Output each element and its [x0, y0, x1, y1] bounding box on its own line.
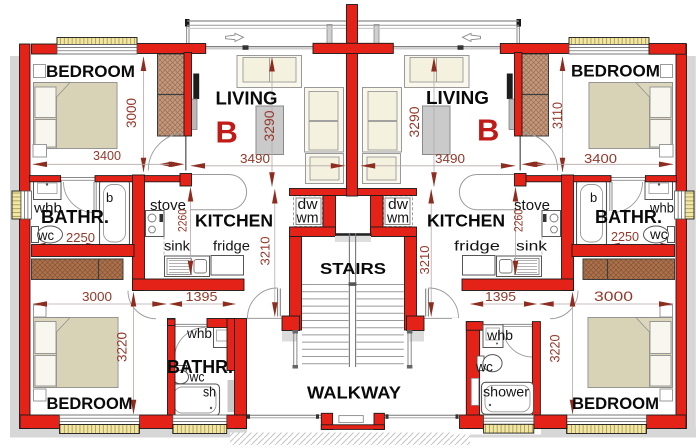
- svg-text:BEDROOM: BEDROOM: [572, 394, 659, 413]
- svg-text:fridge: fridge: [213, 238, 250, 254]
- svg-text:wc: wc: [189, 369, 205, 385]
- svg-text:wc: wc: [37, 227, 54, 243]
- svg-text:3110: 3110: [550, 102, 565, 129]
- svg-text:3490: 3490: [435, 151, 465, 166]
- svg-text:3400: 3400: [93, 149, 121, 163]
- svg-text:1395: 1395: [485, 289, 516, 304]
- svg-text:2260: 2260: [178, 209, 190, 232]
- svg-text:whb: whb: [486, 327, 513, 343]
- svg-text:sink: sink: [164, 238, 191, 254]
- svg-text:sink: sink: [516, 238, 548, 254]
- svg-text:1395: 1395: [186, 289, 218, 304]
- svg-text:3000: 3000: [82, 289, 112, 304]
- svg-text:wm: wm: [296, 211, 319, 227]
- svg-text:b: b: [106, 190, 113, 205]
- svg-text:whb: whb: [33, 200, 62, 216]
- svg-text:2250: 2250: [611, 229, 639, 244]
- svg-text:3210: 3210: [417, 246, 432, 275]
- svg-text:B: B: [477, 113, 499, 148]
- svg-text:3220: 3220: [548, 335, 563, 363]
- svg-text:KITCHEN: KITCHEN: [195, 211, 273, 231]
- svg-text:fridge: fridge: [454, 238, 500, 254]
- svg-text:KITCHEN: KITCHEN: [427, 211, 505, 231]
- svg-text:3000: 3000: [124, 98, 139, 128]
- svg-text:LIVING: LIVING: [426, 88, 489, 108]
- svg-text:sh: sh: [203, 384, 216, 400]
- svg-text:WALKWAY: WALKWAY: [307, 383, 401, 403]
- svg-text:wm: wm: [386, 211, 409, 227]
- svg-text:B: B: [216, 115, 238, 150]
- svg-text:b: b: [590, 190, 597, 205]
- svg-text:BEDROOM: BEDROOM: [571, 62, 660, 81]
- svg-text:2260: 2260: [514, 209, 526, 232]
- svg-text:whb: whb: [186, 325, 212, 341]
- svg-text:2250: 2250: [66, 230, 95, 245]
- svg-text:wc: wc: [649, 226, 668, 242]
- svg-text:STAIRS: STAIRS: [320, 261, 386, 278]
- svg-text:3220: 3220: [115, 332, 130, 362]
- svg-text:shower: shower: [483, 384, 529, 400]
- svg-text:LIVING: LIVING: [216, 89, 278, 109]
- svg-text:BEDROOM: BEDROOM: [47, 394, 133, 413]
- svg-text:3490: 3490: [240, 151, 270, 166]
- svg-text:3290: 3290: [262, 111, 277, 142]
- svg-text:whb: whb: [649, 200, 674, 216]
- svg-text:3290: 3290: [407, 107, 422, 138]
- svg-text:BEDROOM: BEDROOM: [46, 62, 135, 81]
- svg-text:3210: 3210: [258, 237, 273, 266]
- svg-text:3000: 3000: [594, 289, 633, 304]
- svg-text:wc: wc: [475, 359, 493, 375]
- svg-text:3400: 3400: [584, 151, 617, 166]
